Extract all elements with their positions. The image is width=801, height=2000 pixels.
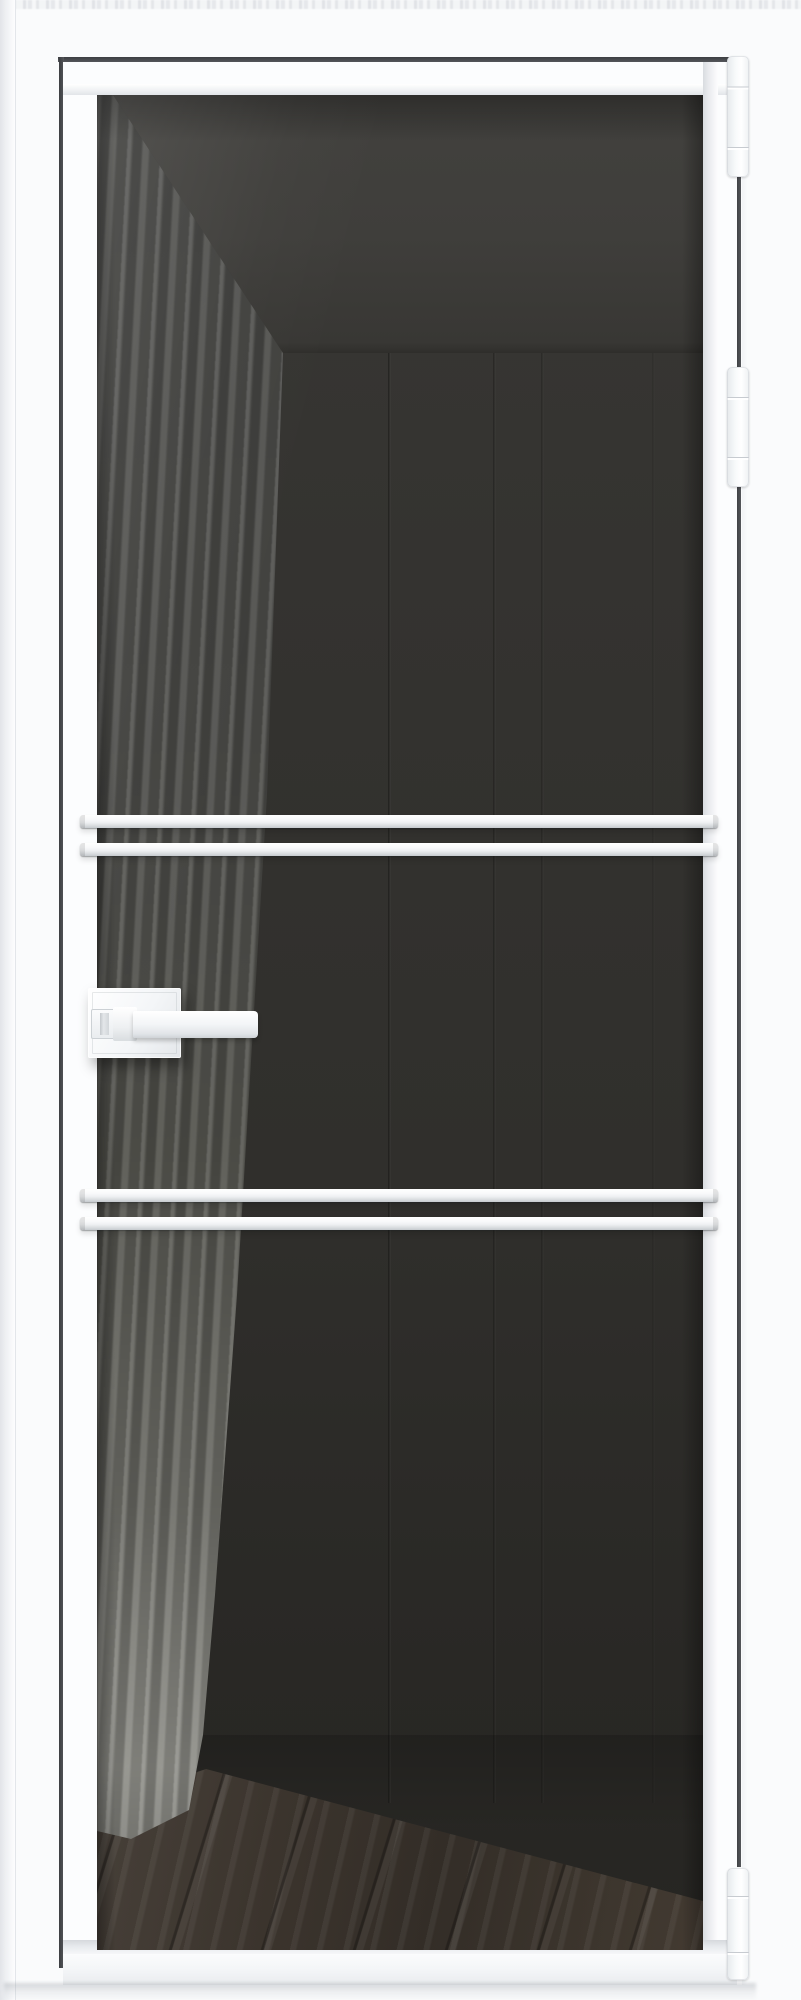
glazing-bar: [80, 1189, 718, 1202]
hinge: [727, 367, 749, 487]
leaf-bottom-rail: [63, 1954, 737, 1985]
leaf-top-rail-bevel: [63, 84, 737, 95]
leaf-right-stile-bevel: [703, 62, 718, 1985]
glazing-bar: [80, 815, 718, 828]
glazing-bar: [80, 843, 718, 856]
glazing-bar: [80, 1217, 718, 1230]
hinge: [727, 1868, 749, 1980]
door-product-photo: [0, 0, 801, 2000]
watermark-strip: [0, 0, 801, 9]
right-wall-casing: [742, 57, 748, 1985]
hinge: [727, 56, 749, 177]
handle-lever: [133, 1011, 258, 1038]
left-wall-casing: [0, 0, 16, 2000]
floor-shadow: [4, 1983, 756, 2000]
